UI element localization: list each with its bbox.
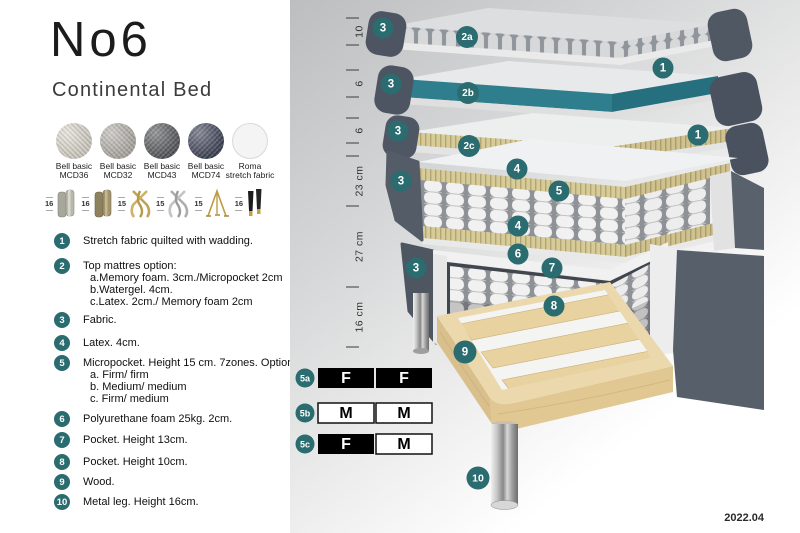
- svg-text:2c: 2c: [463, 141, 475, 152]
- callout-9: 9: [454, 341, 477, 364]
- feature-item-6: 6 Polyurethane foam 25kg. 2cm.: [46, 411, 298, 427]
- firmness-right: M: [397, 436, 410, 453]
- feature-text: Metal leg. Height 16cm.: [83, 494, 199, 508]
- dim-27cm: 27 cm: [354, 231, 366, 262]
- callout-3-box: 3: [406, 258, 427, 279]
- callout-5: 5: [549, 181, 570, 202]
- feature-text: Micropocket. Height 15 cm. 7zones. Optio…: [83, 355, 296, 369]
- firmness-left: M: [339, 405, 352, 422]
- svg-text:2a: 2a: [461, 32, 473, 43]
- feature-subitem: a.Memory foam. 3cm./Micropocket 2cm: [90, 272, 300, 284]
- feature-item-9: 9 Wood.: [46, 474, 298, 490]
- feature-text: Fabric.: [83, 312, 117, 326]
- feature-number-badge: 1: [54, 233, 70, 249]
- bed-exploded-diagram: 10 6 6 23 cm 27 cm 16 cm: [290, 0, 800, 533]
- feature-text: Polyurethane foam 25kg. 2cm.: [83, 411, 232, 425]
- firmness-left: F: [341, 436, 351, 453]
- svg-text:6: 6: [515, 249, 521, 261]
- dim-10: 10: [354, 25, 366, 38]
- firmness-id: 5c: [300, 440, 310, 450]
- feature-number-badge: 7: [54, 432, 70, 448]
- callout-3-layer2b: 3: [381, 74, 402, 95]
- feature-number-badge: 4: [54, 335, 70, 351]
- svg-text:3: 3: [398, 176, 404, 188]
- feature-text: Stretch fabric quilted with wadding.: [83, 233, 253, 247]
- feature-text: Wood.: [83, 474, 115, 488]
- firmness-right: F: [399, 370, 409, 387]
- firmness-id: 5b: [300, 409, 311, 419]
- callout-4-top: 4: [507, 159, 528, 180]
- feature-number-badge: 8: [54, 454, 70, 470]
- callout-2c: 2c: [458, 135, 480, 157]
- bed-infographic-page: No6 Continental Bed Bell basicMCD36 Bell…: [0, 0, 800, 533]
- svg-text:8: 8: [551, 301, 558, 313]
- svg-text:4: 4: [515, 221, 522, 233]
- svg-text:3: 3: [380, 23, 386, 35]
- firmness-right: M: [397, 405, 410, 422]
- svg-text:3: 3: [388, 79, 394, 91]
- feature-item-8: 8 Pocket. Height 10cm.: [46, 454, 298, 470]
- svg-text:2b: 2b: [462, 88, 474, 99]
- feature-item-3: 3 Fabric.: [46, 312, 298, 328]
- svg-text:3: 3: [413, 263, 419, 275]
- callout-6: 6: [508, 244, 529, 265]
- metal-leg-back: [413, 293, 429, 354]
- callout-1-upper: 1: [653, 58, 674, 79]
- feature-item-4: 4 Latex. 4cm.: [46, 335, 298, 351]
- callout-10: 10: [467, 467, 490, 490]
- feature-item-1: 1 Stretch fabric quilted with wadding.: [46, 233, 298, 249]
- svg-text:3: 3: [395, 126, 401, 138]
- svg-text:5: 5: [556, 186, 563, 198]
- svg-text:7: 7: [549, 263, 555, 275]
- info-panel: No6 Continental Bed Bell basicMCD36 Bell…: [0, 0, 292, 533]
- firmness-left: F: [341, 370, 351, 387]
- feature-text: Latex. 4cm.: [83, 335, 140, 349]
- callout-7: 7: [542, 258, 563, 279]
- feature-text: Top mattres option:: [83, 258, 177, 272]
- feature-text: Pocket. Height 13cm.: [83, 432, 188, 446]
- feature-number-badge: 10: [54, 494, 70, 510]
- svg-text:4: 4: [514, 164, 521, 176]
- callout-8: 8: [544, 296, 565, 317]
- feature-subitem: b. Medium/ medium: [90, 381, 300, 393]
- feature-number-badge: 6: [54, 411, 70, 427]
- feature-number-badge: 5: [54, 355, 70, 371]
- callout-2b: 2b: [457, 82, 479, 104]
- feature-number-badge: 9: [54, 474, 70, 490]
- metal-leg-front: [491, 421, 518, 510]
- dim-6a: 6: [354, 80, 366, 86]
- firmness-id: 5a: [300, 374, 311, 384]
- feature-subitem: c.Latex. 2cm./ Memory foam 2cm: [90, 296, 300, 308]
- feature-subitem: c. Firm/ medium: [90, 393, 300, 405]
- svg-text:1: 1: [660, 63, 667, 75]
- callout-3-mattress: 3: [391, 171, 412, 192]
- feature-item-10: 10 Metal leg. Height 16cm.: [46, 494, 298, 510]
- feature-item-7: 7 Pocket. Height 13cm.: [46, 432, 298, 448]
- feature-subitem: b.Watergel. 4cm.: [90, 284, 300, 296]
- version-label: 2022.04: [724, 512, 765, 524]
- svg-text:9: 9: [462, 347, 468, 359]
- svg-text:10: 10: [472, 473, 484, 485]
- callout-4-bottom: 4: [508, 216, 529, 237]
- callout-3-layer2c: 3: [388, 121, 409, 142]
- callout-2a: 2a: [456, 26, 478, 48]
- callout-3-layer2a: 3: [373, 18, 394, 39]
- feature-text: Pocket. Height 10cm.: [83, 454, 188, 468]
- dim-16cm: 16 cm: [354, 301, 366, 332]
- callout-1-lower: 1: [688, 125, 709, 146]
- dim-23cm: 23 cm: [354, 165, 366, 196]
- feature-number-badge: 3: [54, 312, 70, 328]
- svg-text:1: 1: [695, 130, 702, 142]
- feature-number-badge: 2: [54, 258, 70, 274]
- feature-subitem: a. Firm/ firm: [90, 369, 300, 381]
- feature-list: 1 Stretch fabric quilted with wadding. 2…: [46, 0, 298, 533]
- dim-6b: 6: [354, 127, 366, 133]
